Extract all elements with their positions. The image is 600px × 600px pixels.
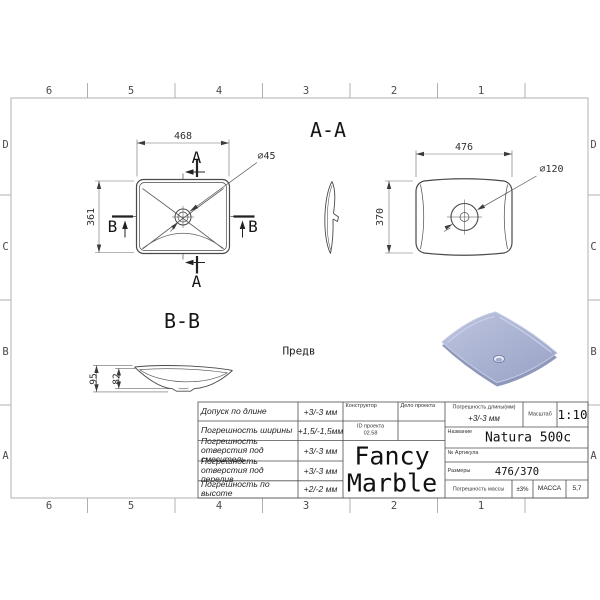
mass-tolerance-value: ±3% [517, 487, 529, 493]
border-row-left-c: C [2, 242, 8, 253]
tolerance-value-5: +2/-2 мм [299, 481, 342, 498]
border-row-left-d: D [2, 140, 8, 151]
mass-label: МАССА [538, 486, 561, 493]
border-col-top-3: 3 [303, 86, 309, 97]
mass-tolerance-label: Погрешность массы [453, 487, 505, 493]
border-col-bottom-2: 2 [391, 501, 397, 512]
border-col-top-6: 6 [46, 86, 52, 97]
bottom-view-drain-dia: ⌀120 [539, 165, 563, 175]
sink-top-surface [442, 312, 557, 383]
drain-leader-120 [444, 176, 537, 232]
tolerance-value-4: +3/-3 мм [299, 461, 342, 481]
top-view-dimension-lines [95, 140, 229, 253]
bottom-view-dimension-lines [385, 151, 512, 254]
border-row-right-a: A [590, 451, 596, 462]
border-col-top-5: 5 [128, 86, 134, 97]
bottom-view-outline [416, 179, 512, 256]
product-name-label: Название [448, 430, 473, 436]
cut-label-a-bottom: A [192, 274, 202, 290]
top-view-width-dim: 468 [174, 132, 192, 142]
bottom-view-dimension-arrows [387, 152, 512, 253]
dimensions-value: 476/370 [495, 467, 539, 478]
border-row-left-a: A [2, 451, 8, 462]
border-row-right-b: B [590, 347, 596, 358]
company-name-line2: Marble [347, 471, 437, 496]
sink-3d-preview [442, 312, 557, 387]
tolerance-label-1: Допуск по длине [201, 402, 295, 421]
section-aa-profile [325, 182, 339, 254]
border-row-left-b: B [2, 347, 8, 358]
tolerance-label-4: Погрешность отверстия под перелив [201, 461, 295, 481]
drain-leader-45 [171, 163, 258, 232]
project-id-value: 02.58 [364, 431, 378, 437]
drawing-sheet: 6 5 4 3 2 1 6 5 4 3 2 1 D C B A D C B A … [0, 0, 600, 600]
tolerance-value-1: +3/-3 мм [299, 402, 342, 421]
tolerance-value-3: +3/-3 мм [299, 441, 342, 462]
border-col-bottom-5: 5 [128, 501, 134, 512]
tolerance-label-5: Погрешность по высоте [201, 481, 295, 498]
dimensions-label: Размеры [448, 469, 471, 475]
border-col-top-1: 1 [478, 86, 484, 97]
sink-drain-hole-shadow [496, 358, 502, 362]
length-tolerance-label: Погрешность длины(мм) [452, 405, 515, 411]
border-col-bottom-6: 6 [46, 501, 52, 512]
top-view-drain-dia: ⌀45 [257, 152, 275, 162]
cut-label-b-right: B [248, 219, 258, 235]
section-bb-inner-height-dim: 82 [112, 373, 122, 384]
project-id-label: ID проекта [357, 424, 384, 430]
top-view-outline [131, 174, 237, 260]
company-name-line1: Fancy [354, 444, 429, 469]
preview-label: Предв [282, 345, 315, 356]
cut-label-a-top: A [192, 150, 202, 166]
product-name-value: Natura 500c [485, 432, 571, 445]
cut-label-b-left: B [108, 219, 118, 235]
drawing-linework [0, 0, 600, 600]
bottom-view-width-dim: 476 [455, 143, 473, 153]
top-view-height-dim: 361 [87, 207, 97, 225]
section-bb-profile [135, 366, 233, 392]
border-col-top-2: 2 [391, 86, 397, 97]
mass-value: 5,7 [572, 486, 581, 493]
section-aa-title: A-A [310, 120, 346, 140]
section-bb-total-height-dim: 95 [89, 373, 99, 384]
border-row-right-c: C [590, 242, 596, 253]
bottom-view-height-dim: 370 [376, 208, 386, 226]
scale-value: 1:10 [557, 408, 587, 421]
border-col-bottom-4: 4 [216, 501, 222, 512]
border-col-bottom-3: 3 [303, 501, 309, 512]
scale-label: Масштаб [528, 412, 552, 418]
designer-label: Конструктор [346, 404, 377, 410]
border-row-right-d: D [590, 140, 596, 151]
article-number-label: № Артикула [448, 451, 479, 457]
border-col-top-4: 4 [216, 86, 222, 97]
tolerance-value-2: +1,5/-1,5мм [299, 421, 342, 441]
length-tolerance-value: +3/-3 мм [468, 415, 500, 423]
section-bb-title: B-B [164, 311, 200, 331]
border-col-bottom-1: 1 [478, 501, 484, 512]
top-view-dimension-arrows [97, 141, 229, 253]
project-label: Дело проекта [401, 404, 436, 410]
